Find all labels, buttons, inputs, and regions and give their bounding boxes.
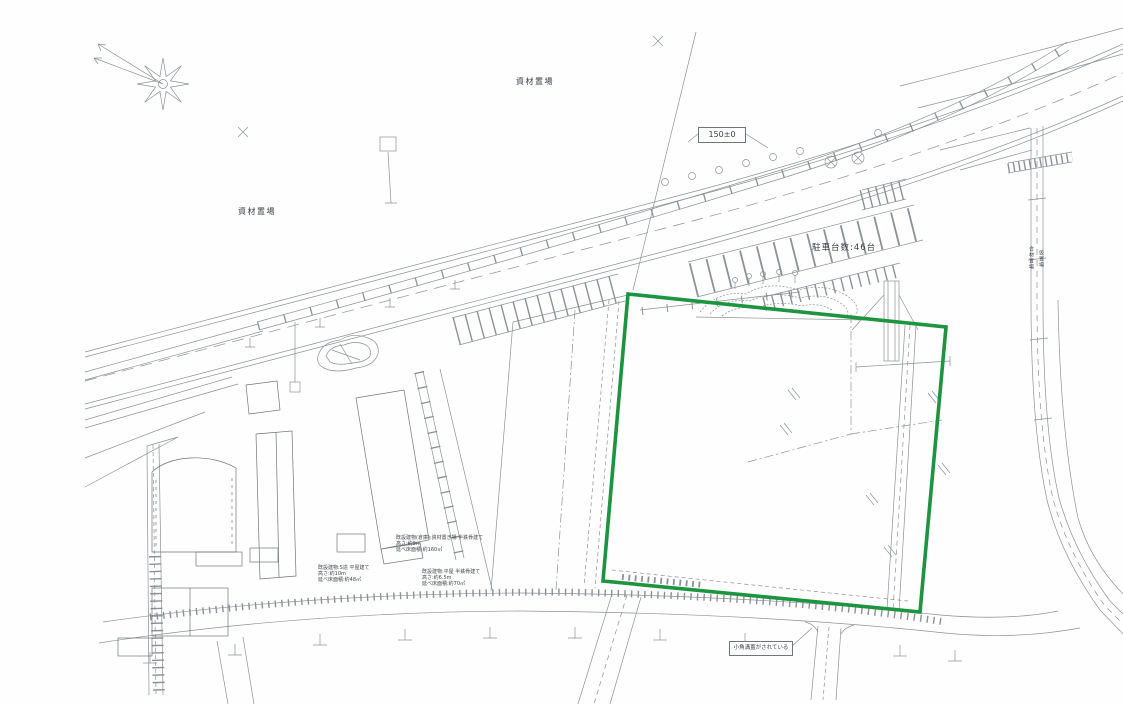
building-note-a: 既設建物(倉庫):資材置き場 半鉄骨建て 高さ:約9m 延べ床面積:約160㎡ — [396, 536, 483, 554]
chimney-and-internal-road — [748, 281, 950, 611]
main-road — [85, 44, 1123, 409]
building-note-c: 既設建物:平屋 半鉄骨建て 高さ:約6.5m 延べ床面積:約70㎡ — [422, 570, 480, 588]
site-boundary-outline — [603, 294, 946, 612]
siding-tracks — [862, 28, 1123, 210]
site-plan-page: 資材置場 資材置場 150±0 駐車台数:46台 小角溝蓋がされている 合材置場… — [0, 0, 1123, 704]
boundary-fence — [415, 369, 492, 589]
survey-cross-marks — [238, 36, 663, 137]
label-material-yard-top: 資材置場 — [516, 78, 554, 86]
pond-outline — [318, 335, 379, 371]
building-note-b: 既設建物:S造 平屋建て 高さ:約10m 延べ床面積:約48㎡ — [318, 566, 369, 584]
label-leaders — [688, 134, 812, 647]
gutter-note-box: 小角溝蓋がされている — [729, 641, 793, 656]
label-vertical-note-2: 仮置場 — [1038, 250, 1045, 268]
label-material-yard-left: 資材置場 — [238, 208, 276, 216]
bottom-road — [99, 592, 1080, 643]
rubble-mound — [696, 270, 866, 321]
guardrail-chain — [257, 42, 1069, 330]
site-plan-drawing — [0, 0, 1123, 704]
north-compass-rose-icon — [94, 44, 189, 110]
parking-stalls — [452, 205, 923, 345]
label-vertical-note-1: 合材置場 — [1028, 246, 1035, 270]
building-note-b-line3: 延べ床面積:約48㎡ — [318, 578, 369, 584]
building-note-a-line3: 延べ床面積:約160㎡ — [396, 548, 483, 554]
right-road — [1028, 126, 1123, 634]
label-parking-count: 駐車台数:46台 — [812, 244, 876, 253]
building-note-c-line3: 延べ床面積:約70㎡ — [422, 582, 480, 588]
level-mark-flag: 150±0 — [698, 127, 746, 143]
site-interior-detail — [612, 292, 908, 601]
roadside-circles — [662, 130, 882, 186]
